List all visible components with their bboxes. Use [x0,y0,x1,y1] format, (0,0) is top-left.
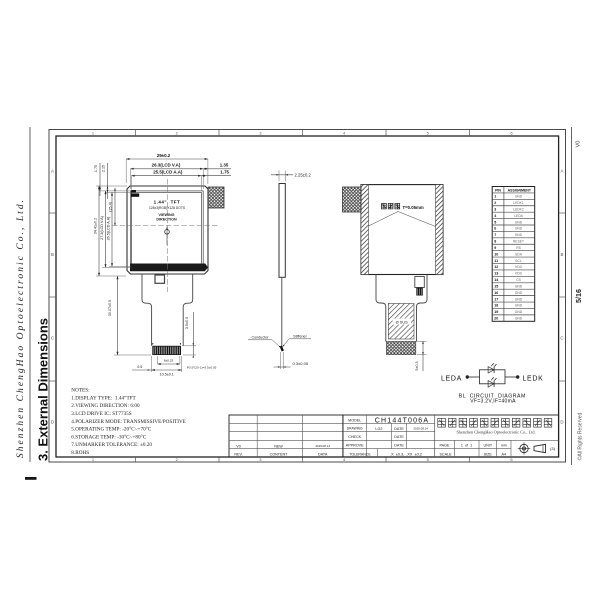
svg-text:DATE: DATE [394,427,404,431]
svg-text:NOTES:: NOTES: [71,388,90,394]
svg-text:2.15: 2.15 [102,165,106,172]
svg-text:LG2: LG2 [375,427,382,431]
svg-text:5±0.3: 5±0.3 [415,361,419,370]
svg-text:GND: GND [515,297,523,301]
svg-text:P0.5*(20-1)=9.5±0.05: P0.5*(20-1)=9.5±0.05 [187,365,217,369]
svg-text:3. External Dimensions: 3. External Dimensions [36,318,51,461]
svg-text:DATA: DATA [318,453,328,457]
svg-text:VDD: VDD [515,272,523,276]
svg-text:1.DISPLAY TYPE: 1.44”TFT: 1.DISPLAY TYPE: 1.44”TFT [71,395,136,401]
svg-text:A4: A4 [502,453,507,457]
svg-text:0.5: 0.5 [137,365,142,369]
svg-text:6: 6 [510,457,513,462]
svg-text:GND: GND [515,233,523,237]
svg-text:6: 6 [494,227,496,231]
svg-text:SCALE: SCALE [439,453,452,457]
svg-text:LEDK2: LEDK2 [513,207,524,211]
svg-text:VF=3.2V,IF=40mA: VF=3.2V,IF=40mA [470,399,516,405]
svg-text:5: 5 [494,220,496,224]
svg-text:LEDA: LEDA [441,376,462,383]
svg-text:GND: GND [515,284,523,288]
svg-text:2: 2 [176,457,179,462]
svg-text:30.07±0.5: 30.07±0.5 [108,300,112,316]
svg-text:12: 12 [494,265,498,269]
svg-text:(3): (3) [550,446,556,451]
svg-text:SDA: SDA [515,252,523,256]
svg-text:DATE: DATE [394,443,404,447]
svg-text:CH144T006A: CH144T006A [375,417,429,424]
svg-text:C: C [51,336,54,341]
svg-text:25.5(LCD A.A): 25.5(LCD A.A) [153,170,183,175]
svg-text:8: 8 [494,240,496,244]
svg-text:0.3±0.05: 0.3±0.05 [293,361,309,366]
svg-text:V0: V0 [236,444,241,448]
svg-text:20: 20 [494,317,498,321]
svg-text:19: 19 [494,310,498,314]
svg-text:10: 10 [494,252,498,256]
svg-text:DIRECTION: DIRECTION [156,218,177,222]
svg-text:GND: GND [515,220,523,224]
svg-text:PIN: PIN [495,188,501,192]
svg-text:V0: V0 [576,141,582,148]
svg-text:NEW: NEW [274,444,283,448]
svg-text:6.STORAGE TEMP: -30°C~+80°C: 6.STORAGE TEMP: -30°C~+80°C [71,433,146,440]
svg-text:VIEWING: VIEWING [159,213,175,217]
svg-text:29±0.2: 29±0.2 [157,153,171,158]
svg-text:RESET: RESET [513,240,524,244]
svg-text:UNIT: UNIT [483,443,492,447]
svg-text:MODEL: MODEL [348,419,361,423]
svg-text:Shenzhen ChengHao Optoelectron: Shenzhen ChengHao Optoelectronic Co., Lt… [16,198,26,458]
svg-text:D: D [51,419,54,424]
svg-text:C: C [560,336,563,341]
svg-text:RS: RS [516,246,521,250]
svg-text:LEDA: LEDA [514,214,523,218]
svg-text:GND: GND [515,304,523,308]
svg-text:15: 15 [494,284,498,288]
svg-text:Ø SUS: Ø SUS [396,319,409,324]
svg-text:128x3(RGB)X128 DOTS: 128x3(RGB)X128 DOTS [149,206,186,210]
svg-text:5: 5 [427,131,430,136]
svg-text:3: 3 [494,207,496,211]
svg-text:B: B [51,252,54,257]
svg-text:2019.08.14: 2019.08.14 [413,426,428,430]
svg-text:ASSIGNMENT: ASSIGNMENT [508,188,532,192]
svg-text:7: 7 [494,233,496,237]
svg-text:CS: CS [516,278,521,282]
svg-text:5/16: 5/16 [574,289,583,303]
svg-text:SCL: SCL [515,259,522,263]
svg-text:26.5(LCD A.A): 26.5(LCD A.A) [106,217,110,241]
svg-text:CHECK: CHECK [348,435,361,439]
svg-text:3: 3 [259,131,262,136]
svg-text:4: 4 [494,214,496,218]
svg-text:13: 13 [494,272,498,276]
svg-text:26.3(LCD V.A): 26.3(LCD V.A) [152,162,181,167]
svg-text:Shenzhen ChengHao Optoelectron: Shenzhen ChengHao Optoelectronic Co., Lt… [456,430,535,436]
svg-text:4.POLARIZER MODE: TRANSMISSIVE: 4.POLARIZER MODE: TRANSMISSIVE/POSITIVE [71,419,186,425]
svg-text:GND: GND [515,310,523,314]
svg-text:VDD: VDD [515,265,523,269]
svg-text:3.5±0.5: 3.5±0.5 [185,317,189,329]
svg-text:6: 6 [510,131,513,136]
svg-text:1.75: 1.75 [220,170,229,175]
svg-text:REV.: REV. [234,453,242,457]
svg-text:GND: GND [515,317,523,321]
svg-text:2019.08.14: 2019.08.14 [315,444,330,448]
svg-text:5.OPERATING TEMP: -20°C~+70°C: 5.OPERATING TEMP: -20°C~+70°C [71,426,151,433]
svg-text:1.75: 1.75 [94,165,98,172]
svg-text:APPROVE: APPROVE [346,443,364,447]
svg-text:1.44" TFT: 1.44" TFT [154,200,181,205]
svg-text:DATE: DATE [394,435,404,439]
svg-text:1: 1 [494,195,496,199]
svg-text:CONTENT: CONTENT [270,453,289,457]
svg-text:LEDK1: LEDK1 [513,201,524,205]
svg-text:34.41±0.2: 34.41±0.2 [93,218,97,234]
svg-text:10.5±0.1: 10.5±0.1 [160,372,174,376]
svg-text:4: 4 [343,131,346,136]
svg-text:TOLERANCE: TOLERANCE [349,453,371,457]
svg-text:18: 18 [494,304,498,308]
svg-text:1: 1 [92,131,95,136]
svg-text:3.LCD DRIVE IC: ST7735S: 3.LCD DRIVE IC: ST7735S [71,411,132,417]
svg-text:PAGE: PAGE [440,443,451,447]
svg-text:B: B [561,252,564,257]
svg-text:1 of 1: 1 of 1 [461,443,472,447]
svg-text:1.35: 1.35 [220,162,229,167]
svg-text:2.25±0.2: 2.25±0.2 [295,172,312,177]
svg-text:T=0.05mm: T=0.05mm [403,205,424,210]
svg-text:©All Rights Reserved: ©All Rights Reserved [577,412,584,460]
svg-text:7.UNMARKER TOLERANCE: ±0.20: 7.UNMARKER TOLERANCE: ±0.20 [71,442,152,448]
svg-text:DRAWING: DRAWING [347,427,363,431]
svg-text:SIZE: SIZE [484,453,493,457]
svg-text:8±0.25: 8±0.25 [164,358,174,362]
svg-text:5: 5 [427,457,430,462]
svg-text:11: 11 [494,259,498,263]
svg-text:A: A [561,169,564,174]
svg-text:17: 17 [494,297,498,301]
svg-text:2: 2 [176,131,179,136]
svg-text:3: 3 [259,457,262,462]
svg-text:A: A [51,169,54,174]
svg-text:16: 16 [494,291,498,295]
svg-text:1: 1 [92,457,95,462]
svg-text:Conductor: Conductor [251,335,269,339]
svg-text:14: 14 [494,278,498,282]
svg-text:8.ROHS: 8.ROHS [71,450,89,456]
svg-text:27.3(LCD V.A): 27.3(LCD V.A) [100,216,104,240]
svg-text:GND: GND [515,291,523,295]
svg-text:Stiffener: Stiffener [293,334,307,338]
svg-text:mm: mm [501,443,507,447]
svg-text:GND: GND [515,195,523,199]
svg-text:4: 4 [343,457,346,462]
svg-text:.X ±0.3, .XX ±0.2: .X ±0.3, .XX ±0.2 [390,453,422,457]
svg-text:2.VIEWING DIRECTION: 6:00: 2.VIEWING DIRECTION: 6:00 [71,403,140,409]
svg-text:GND: GND [515,227,523,231]
svg-text:9: 9 [494,246,496,250]
svg-text:2: 2 [494,201,496,205]
svg-text:D: D [560,419,563,424]
svg-text:LEDK: LEDK [522,376,543,383]
